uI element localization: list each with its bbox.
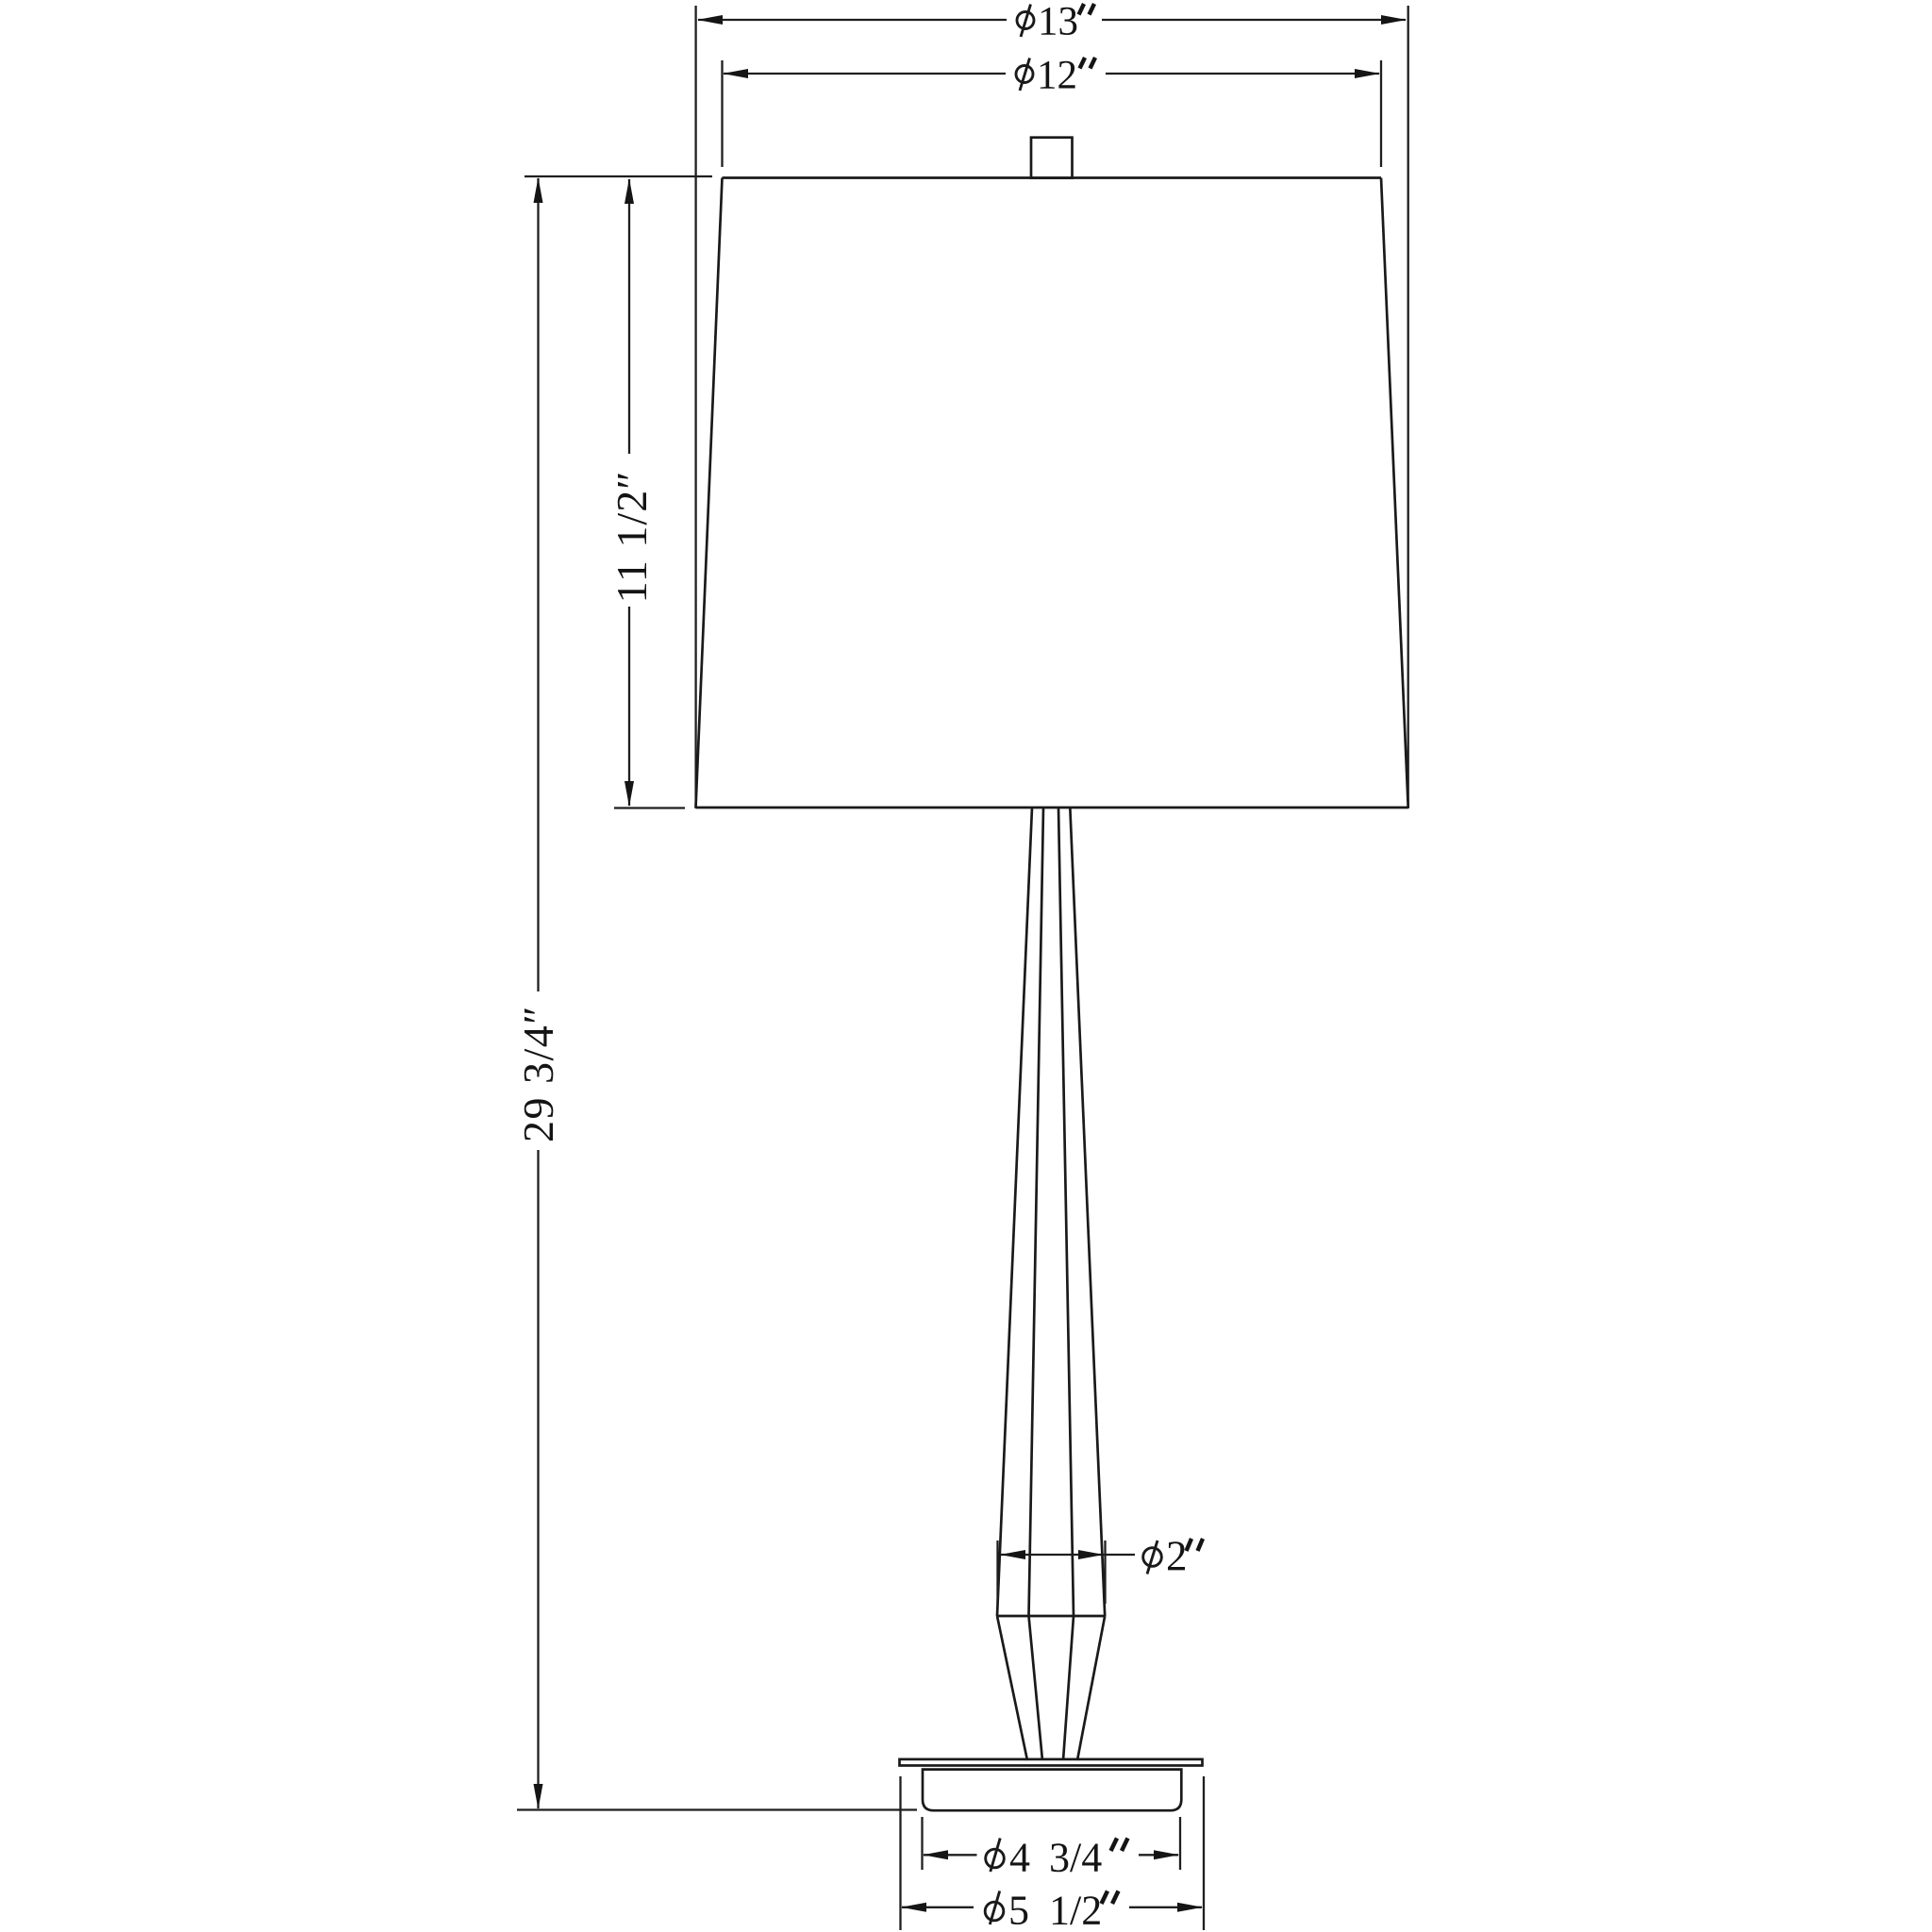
svg-text:11 1/2″: 11 1/2″ (608, 471, 656, 604)
svg-text:13: 13 (1038, 0, 1078, 44)
svg-text:2: 2 (1166, 1533, 1188, 1580)
svg-text:3/4: 3/4 (1049, 1835, 1102, 1881)
svg-text:4: 4 (1009, 1835, 1030, 1881)
svg-text:5: 5 (1008, 1888, 1029, 1932)
svg-text:1/2: 1/2 (1049, 1888, 1102, 1932)
svg-text:29 3/4″: 29 3/4″ (514, 1005, 562, 1142)
svg-text:12: 12 (1037, 54, 1077, 98)
